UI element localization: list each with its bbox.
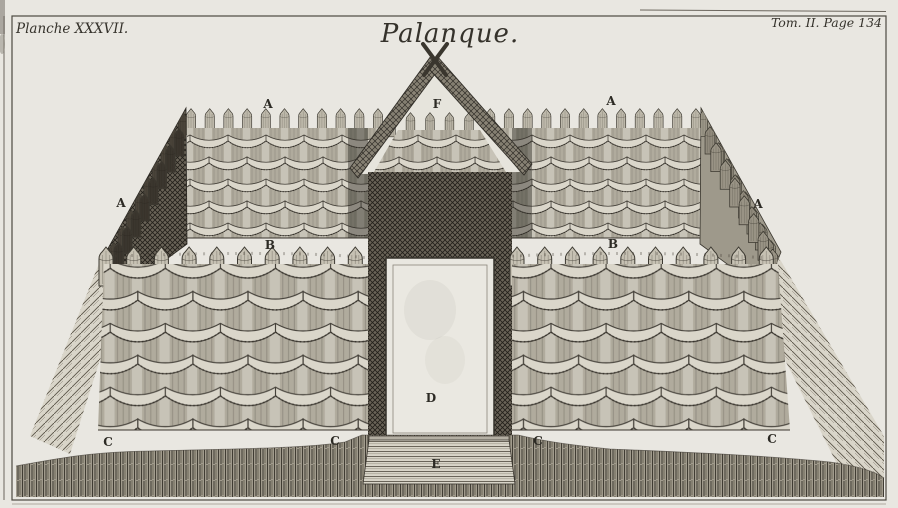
part-label-c-mid-left: C	[330, 434, 340, 448]
gate-shadow-left	[348, 128, 368, 238]
page: A A A A F B B C C C C D E Planche XXXVII…	[0, 0, 898, 508]
part-label-f-gable: F	[433, 97, 442, 111]
engraving-plate: A A A A F B B C C C C D E Planche XXXVII…	[0, 0, 898, 508]
part-label-a-left-wall: A	[115, 196, 126, 210]
page-title: Palanque.	[380, 19, 519, 49]
part-label-a-back-left: A	[262, 97, 273, 111]
part-label-e-step: E	[431, 457, 440, 471]
part-label-b-right: B	[608, 237, 618, 251]
part-label-d-door: D	[426, 391, 436, 405]
plate-number: Planche XXXVII.	[15, 21, 128, 37]
part-label-c-far-right: C	[767, 432, 777, 446]
gate-doorway	[386, 258, 494, 438]
scan-edge-artifact	[0, 0, 5, 54]
part-label-a-back-right: A	[605, 94, 616, 108]
tome-page-reference: Tom. II. Page 134	[771, 15, 882, 30]
part-label-c-far-left: C	[103, 435, 113, 449]
part-label-b-left: B	[265, 238, 275, 252]
part-label-c-mid-right: C	[533, 434, 543, 448]
part-label-a-right-wall: A	[752, 197, 763, 211]
